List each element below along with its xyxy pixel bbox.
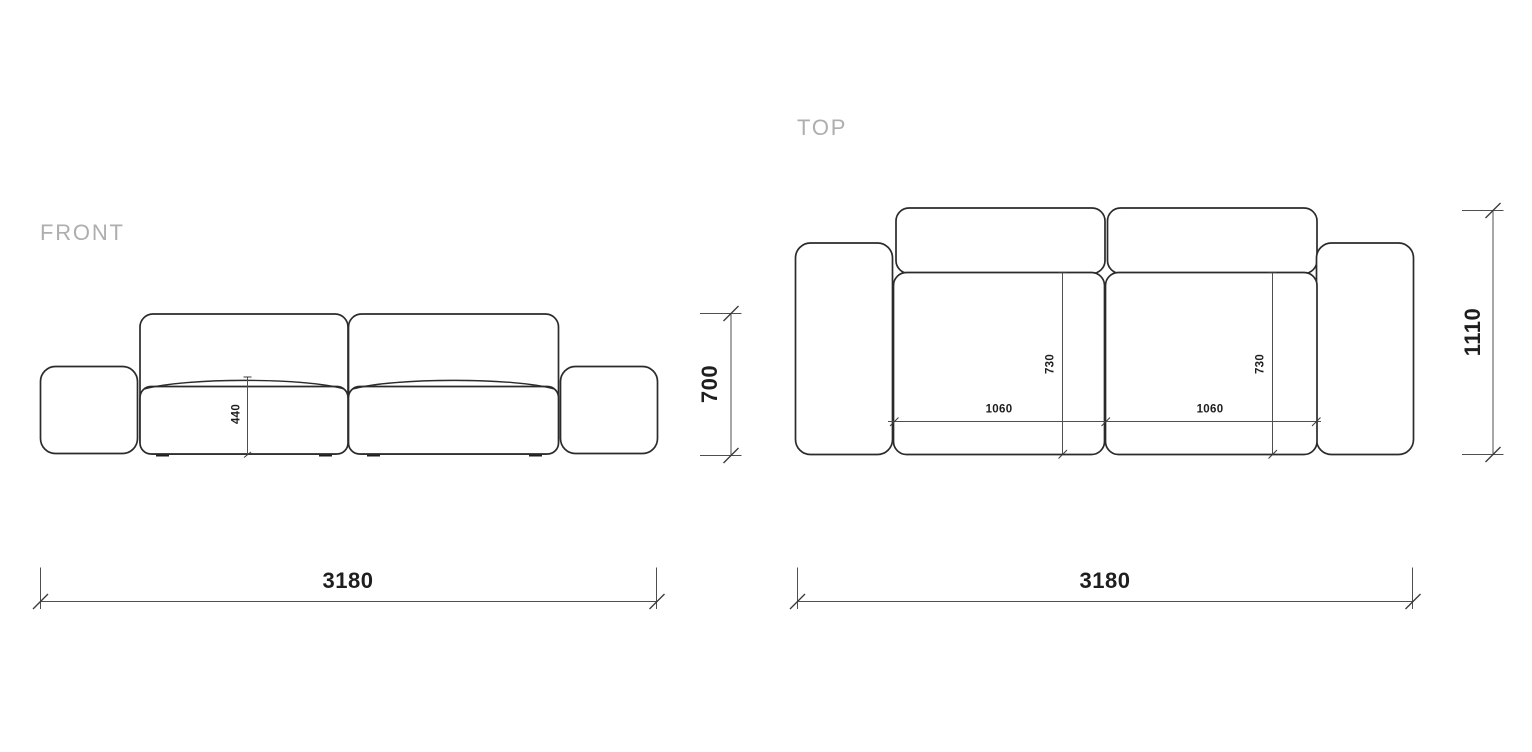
drawing-canvas: FRONT TOP 440 700 3180 730 730 1060 1060… <box>0 0 1532 752</box>
top-dim-overall-width: 3180 <box>1080 570 1131 592</box>
top-view-drawing <box>796 208 1414 455</box>
top-backrest-right <box>1108 208 1318 274</box>
top-armrest-left <box>796 243 893 455</box>
top-dim-overall-depth: 1110 <box>1462 308 1484 357</box>
front-seat-left <box>140 387 348 455</box>
top-dim-seat-width-right: 1060 <box>1197 404 1224 416</box>
top-seat-left <box>894 273 1105 455</box>
top-dim-seat-depth-left: 730 <box>1045 354 1057 374</box>
front-armrest-right <box>561 367 658 454</box>
sofa-dimension-drawing <box>0 0 1532 752</box>
front-dim-seat-height: 440 <box>231 404 243 424</box>
top-armrest-right <box>1317 243 1414 455</box>
front-view-drawing <box>41 314 658 457</box>
top-dim-seat-width-left: 1060 <box>986 404 1013 416</box>
top-backrest-left <box>896 208 1105 274</box>
front-seat-right <box>349 387 559 455</box>
top-dim-seat-depth-right: 730 <box>1255 354 1267 374</box>
front-dim-overall-width: 3180 <box>323 570 374 592</box>
front-armrest-left <box>41 367 138 454</box>
front-view-label: FRONT <box>40 222 125 244</box>
front-dim-overall-height: 700 <box>699 365 721 403</box>
top-view-label: TOP <box>797 117 847 139</box>
top-seat-right <box>1106 273 1318 455</box>
